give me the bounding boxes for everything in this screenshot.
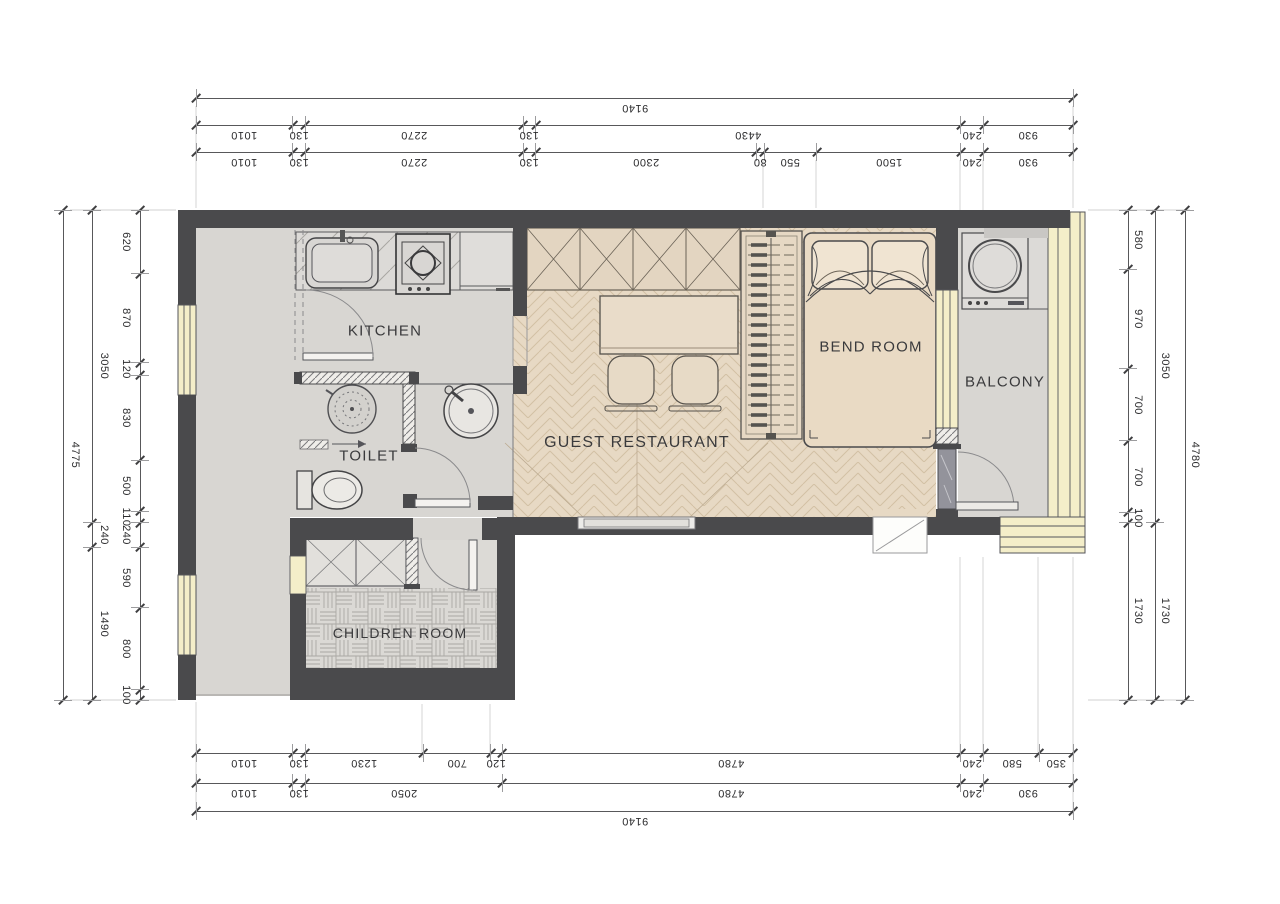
wardrobe-hangers-icon xyxy=(741,231,802,439)
dim-label: 500 xyxy=(120,476,132,496)
dim-label: 700 xyxy=(1132,395,1144,415)
dim-label: 930 xyxy=(1018,156,1038,168)
dim-label: 1010 xyxy=(231,156,257,168)
room-label-bend-room: BEND ROOM xyxy=(819,339,922,356)
dim-label: 1490 xyxy=(98,610,110,636)
dim-label: 590 xyxy=(120,568,132,588)
dim-label: 130 xyxy=(519,156,539,168)
dim-label: 130 xyxy=(289,129,309,141)
room-label-children-room: CHILDREN ROOM xyxy=(333,625,468,641)
dim-label: 4775 xyxy=(69,442,81,468)
stove-icon xyxy=(396,234,450,294)
dim-label: 830 xyxy=(120,408,132,428)
room-label-guest-restaurant: GUEST RESTAURANT xyxy=(544,434,730,452)
washing-machine-icon xyxy=(962,233,1048,309)
balcony-glass-door xyxy=(938,449,956,509)
dim-label: 550 xyxy=(780,156,800,168)
dim-label: 100 xyxy=(120,685,132,705)
dim-label: 1230 xyxy=(351,757,377,769)
dim-label: 1010 xyxy=(231,787,257,799)
dim-label: 130 xyxy=(519,129,539,141)
dim-label: 580 xyxy=(1132,230,1144,250)
kitchen-cabinet xyxy=(460,232,513,291)
dim-label: 4780 xyxy=(718,787,744,799)
dim-label: 700 xyxy=(1132,467,1144,487)
dim-label: 110 xyxy=(120,507,132,526)
children-wardrobe xyxy=(306,538,420,589)
dim-label: 930 xyxy=(1018,787,1038,799)
dim-label: 130 xyxy=(289,757,309,769)
floor-plan-canvas xyxy=(0,0,1280,904)
tv-niche xyxy=(578,517,695,529)
dim-label: 240 xyxy=(98,525,110,545)
dim-label: 240 xyxy=(120,525,132,545)
dim-label: 2270 xyxy=(401,129,427,141)
dim-label: 930 xyxy=(1018,129,1038,141)
dim-label: 4780 xyxy=(1189,442,1201,468)
toilet-icon xyxy=(297,471,362,509)
dim-label: 9140 xyxy=(621,102,647,114)
dim-label: 620 xyxy=(120,232,132,252)
dim-label: 580 xyxy=(1002,757,1022,769)
wall-cabinets xyxy=(527,228,740,290)
dim-label: 120 xyxy=(486,757,506,769)
dim-label: 120 xyxy=(120,359,132,379)
dim-label: 970 xyxy=(1132,309,1144,329)
dim-label: 1010 xyxy=(231,757,257,769)
dim-label: 240 xyxy=(962,787,982,799)
room-label-balcony: BALCONY xyxy=(965,374,1045,391)
dim-label: 2300 xyxy=(633,156,659,168)
dim-label: 240 xyxy=(962,156,982,168)
dim-label: 4780 xyxy=(718,757,744,769)
dim-label: 130 xyxy=(289,156,309,168)
room-label-kitchen: KITCHEN xyxy=(348,323,422,340)
dim-label: 1500 xyxy=(876,156,902,168)
dim-label: 2050 xyxy=(390,787,416,799)
dim-label: 1730 xyxy=(1132,598,1144,624)
entry-door xyxy=(873,509,927,553)
dim-label: 80 xyxy=(754,156,767,168)
dim-label: 2270 xyxy=(401,156,427,168)
dim-label: 1010 xyxy=(231,129,257,141)
dim-label: 700 xyxy=(447,757,467,769)
dim-label: 3050 xyxy=(1159,353,1171,379)
floorplan-page: KITCHEN TOILET GUEST RESTAURANT BEND ROO… xyxy=(0,0,1280,904)
room-label-toilet: TOILET xyxy=(339,448,398,465)
dim-label: 240 xyxy=(962,129,982,141)
dim-label: 240 xyxy=(962,757,982,769)
dim-label: 130 xyxy=(289,787,309,799)
dim-label: 870 xyxy=(120,308,132,328)
dim-label: 1730 xyxy=(1159,598,1171,624)
sink-icon xyxy=(306,230,378,288)
dining-table xyxy=(600,296,738,354)
dim-label: 100 xyxy=(1132,508,1144,528)
dim-label: 4430 xyxy=(735,129,761,141)
dim-label: 9140 xyxy=(621,815,647,827)
dim-label: 350 xyxy=(1046,757,1066,769)
dim-label: 3050 xyxy=(98,353,110,379)
dim-label: 800 xyxy=(120,639,132,659)
